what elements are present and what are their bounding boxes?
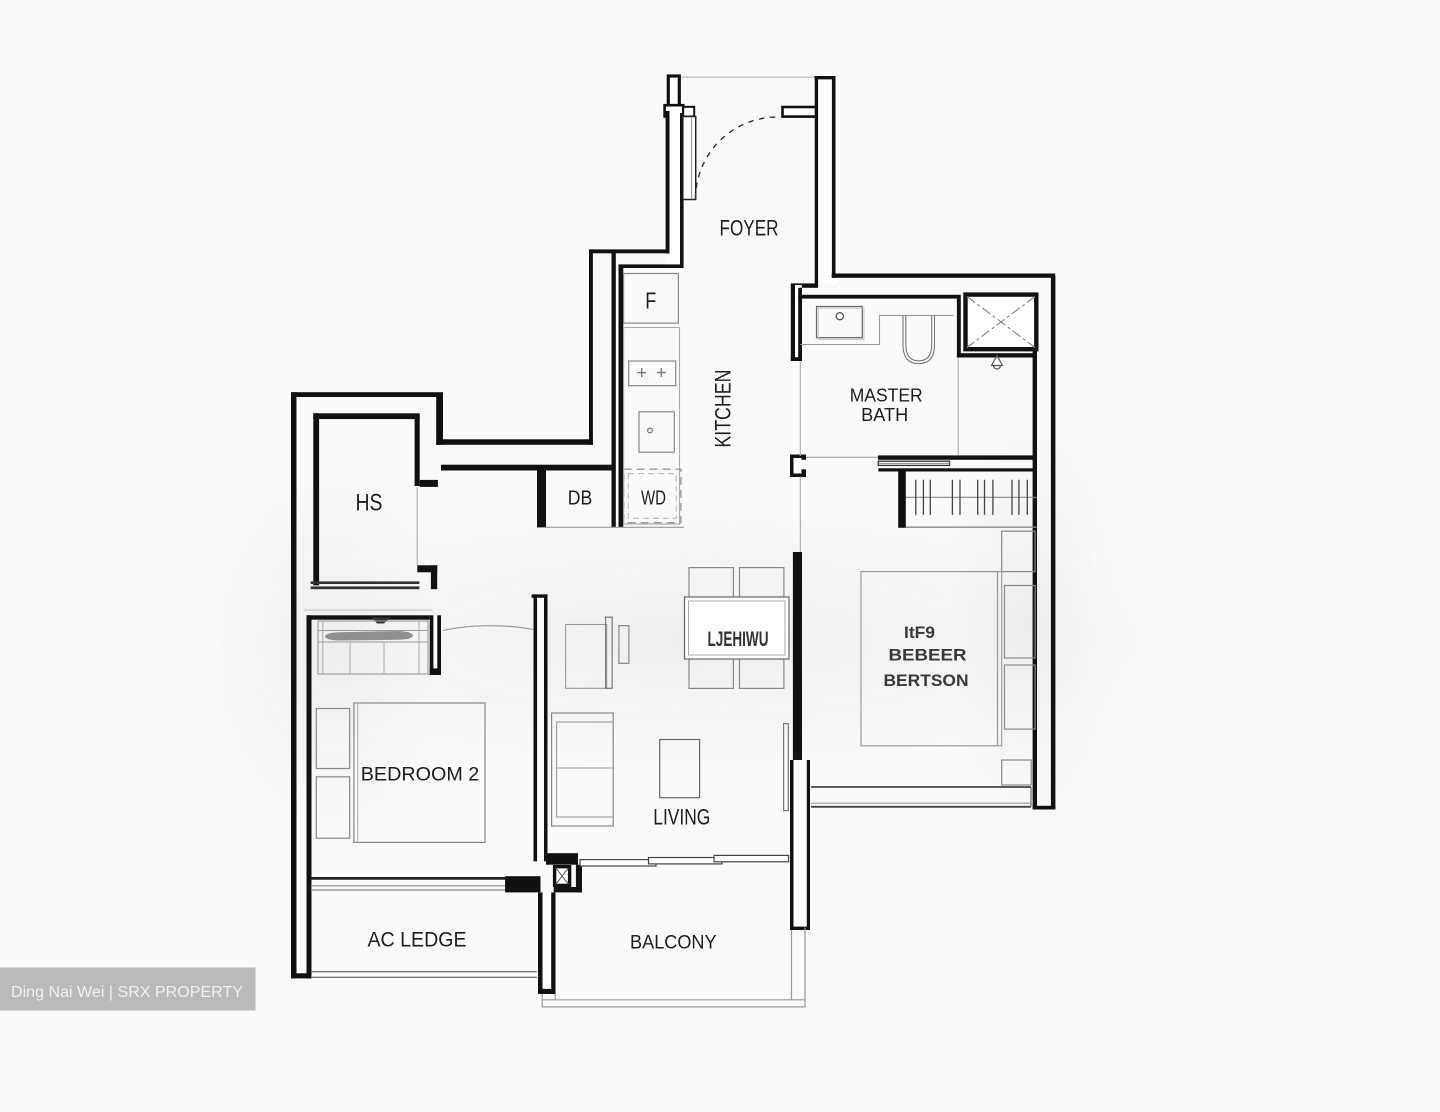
- svg-text:AC LEDGE: AC LEDGE: [368, 927, 467, 951]
- svg-text:DB: DB: [568, 487, 593, 510]
- svg-text:BEBEER: BEBEER: [889, 647, 967, 665]
- svg-text:F: F: [645, 288, 656, 314]
- svg-text:LIVING: LIVING: [653, 805, 710, 830]
- svg-text:BEDROOM 2: BEDROOM 2: [361, 765, 480, 786]
- svg-text:BALCONY: BALCONY: [630, 931, 717, 953]
- svg-text:WD: WD: [641, 486, 666, 509]
- svg-text:FOYER: FOYER: [720, 216, 779, 241]
- svg-text:BERTSON: BERTSON: [884, 672, 969, 690]
- svg-text:MASTER: MASTER: [850, 385, 923, 405]
- svg-text:Ding Nai Wei | SRX PROPERTY: Ding Nai Wei | SRX PROPERTY: [11, 984, 243, 1001]
- svg-text:KITCHEN: KITCHEN: [711, 370, 736, 448]
- svg-text:HS: HS: [356, 489, 383, 516]
- svg-text:BATH: BATH: [861, 405, 908, 425]
- svg-text:ItF9: ItF9: [904, 624, 935, 642]
- svg-text:LJEHIWU: LJEHIWU: [708, 628, 769, 651]
